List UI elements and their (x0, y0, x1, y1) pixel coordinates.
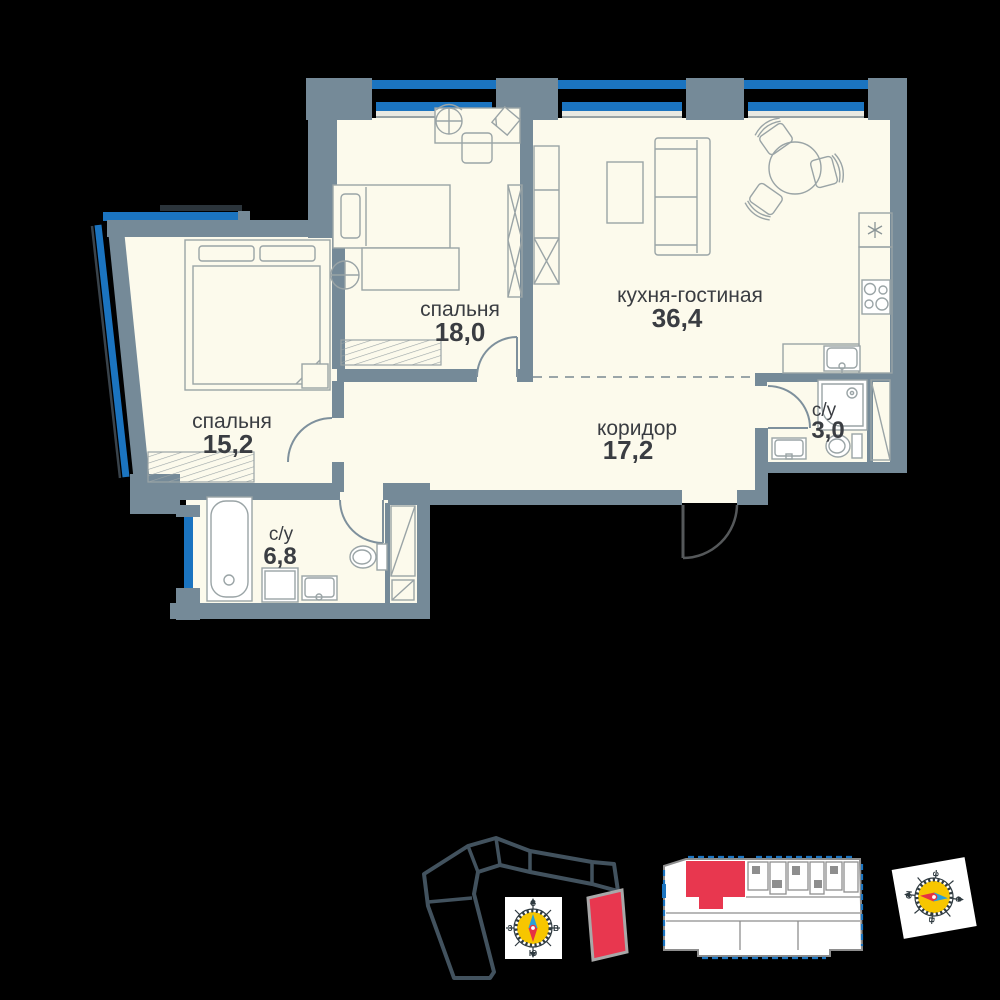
room-area-bathroom-3: 3,0 (811, 417, 844, 444)
svg-text:С: С (954, 896, 963, 903)
stove-icon (862, 280, 890, 314)
screenshot-canvas: спальня 18,0 кухня-гостиная 36,4 спальня… (0, 0, 1000, 1000)
floor-plate-minimap (664, 857, 862, 958)
room-area-kitchen-living: 36,4 (652, 303, 703, 333)
window-bathroom-68 (184, 515, 193, 590)
svg-text:В: В (927, 917, 936, 924)
bathtub-icon (207, 497, 252, 601)
site-plan: С Ю З В (424, 838, 627, 978)
window-kitchen-left (558, 78, 686, 118)
svg-text:С: С (530, 899, 536, 908)
room-area-bathroom-68: 6,8 (263, 543, 296, 570)
compass-icon: С Ю З В (892, 857, 977, 939)
svg-text:В: В (553, 924, 559, 933)
svg-text:Ю: Ю (529, 949, 537, 958)
room-name-bathroom-68: с/у (269, 524, 294, 545)
highlighted-building-section (588, 890, 627, 960)
svg-text:З: З (507, 924, 512, 933)
sink-icon (824, 346, 860, 374)
balcony-frame-dark (160, 205, 242, 211)
sofa-icon (655, 138, 710, 255)
svg-text:Ю: Ю (904, 890, 914, 899)
entrance-door (683, 505, 737, 558)
sink-icon (772, 438, 806, 459)
room-area-bedroom-18: 18,0 (435, 317, 486, 347)
compass-icon: С Ю З В (505, 897, 562, 959)
window-kitchen-right (744, 78, 868, 118)
nightstand (302, 364, 328, 388)
sink-icon (302, 576, 337, 600)
room-area-bedroom-15: 15,2 (203, 429, 254, 459)
radiator-icon (341, 340, 441, 365)
room-area-corridor: 17,2 (603, 435, 654, 465)
building-section-dividers (428, 838, 592, 902)
floorplan-image: спальня 18,0 кухня-гостиная 36,4 спальня… (0, 0, 1000, 1000)
svg-text:З: З (931, 871, 940, 877)
bed-icon (333, 185, 450, 248)
washing-machine-icon (262, 568, 298, 602)
toilet-icon (350, 544, 387, 570)
balcony-glazing-top (103, 212, 242, 221)
